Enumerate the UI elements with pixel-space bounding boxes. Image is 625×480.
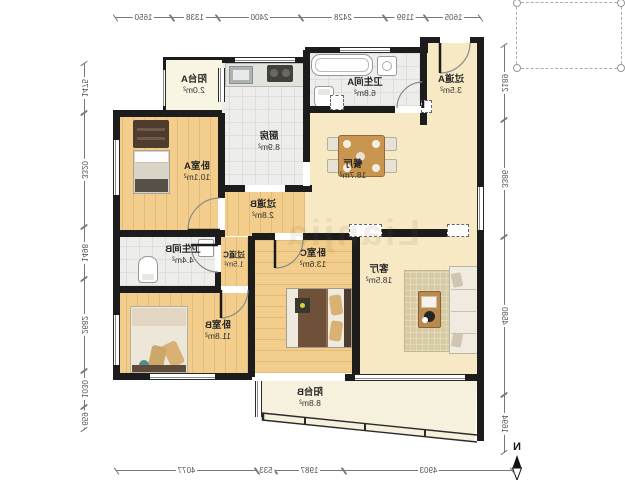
room-label-kitchen: 厨房8.9m²: [258, 132, 280, 152]
door-opening-bedroom-a: [218, 198, 225, 230]
wall: [248, 236, 255, 377]
dim-top: 2428: [301, 17, 385, 18]
dim-side: 2189: [504, 45, 505, 120]
dining-chair: [384, 159, 397, 173]
dim-side: 1475: [84, 63, 85, 113]
window-bedroom-b: [150, 373, 215, 380]
dim-side: 1694: [504, 395, 505, 453]
wall-balcony-a: [163, 57, 222, 60]
window-balcony-a: [163, 70, 166, 106]
kitchen-sink: [229, 66, 253, 84]
living-sofa: [449, 266, 478, 354]
bedroom-c-bed: [286, 288, 352, 348]
room-label-bedroom-a: 卧室A10.1m²: [184, 162, 210, 182]
window-kitchen: [235, 57, 295, 63]
window-dining: [477, 187, 484, 230]
dim-top: 1605: [426, 17, 481, 18]
room-label-balcony-b: 阳台B8.8m²: [297, 388, 323, 408]
window-bathroom-a: [340, 47, 390, 53]
door-opening-bedroom-b: [221, 286, 248, 293]
wall: [113, 230, 225, 237]
corner-circle: [513, 0, 521, 7]
dim-bottom: 1987: [275, 470, 344, 471]
window-balcony-b: [255, 381, 262, 417]
corner-circle: [617, 64, 625, 72]
bedroom-b-bed: [130, 306, 188, 373]
room-label-hallway-a: 过道A3.5m²: [438, 75, 464, 95]
window-bedroom-a: [113, 140, 120, 195]
room-label-bathroom-b: 卫生间B4.4m²: [165, 245, 200, 265]
room-label-dining: 餐厅18.7m²: [340, 160, 366, 180]
room-label-bedroom-c: 卧室C13.6m²: [300, 249, 326, 269]
room-label-bathroom-a: 卫生间A6.8m²: [347, 78, 382, 98]
room-label-hallway-c: 过道C1.5m²: [223, 251, 245, 268]
balcony-armchair: [376, 389, 407, 420]
flue-box: [330, 95, 344, 110]
door-opening-bathroom-a: [395, 106, 422, 113]
corner-circle: [513, 64, 521, 72]
corner-circle: [617, 0, 625, 7]
window-balcony-a-door: [218, 68, 225, 102]
balcony-armchair: [430, 391, 455, 418]
bathroom-a-sink: [377, 56, 397, 76]
kitchen-stove: [267, 65, 293, 82]
bedroom-a-bed: [133, 150, 170, 194]
door-opening-kitchen: [303, 162, 310, 186]
dim-bottom: 4903: [344, 470, 513, 471]
dim-top: 1650: [115, 17, 172, 18]
wall: [352, 236, 360, 381]
dim-top: 1199: [385, 17, 426, 18]
compass-needle-icon: [513, 455, 522, 468]
dim-top: 1338: [172, 17, 218, 18]
wall: [113, 110, 222, 117]
room-label-bedroom-b: 卧室B11.8m²: [205, 321, 231, 341]
bathroom-b-toilet: [138, 256, 158, 283]
window-bedroom-b-side: [113, 315, 120, 365]
flue-box: [421, 100, 432, 113]
dim-bottom: 533: [257, 470, 275, 471]
door-opening-kitchen-hall: [245, 185, 285, 192]
living-coffee-table: [418, 291, 441, 328]
dim-side: 4580: [504, 237, 505, 395]
dim-top: 2400: [218, 17, 301, 18]
floorplan-image: 阳台A2.0m² 厨房8.9m² 卫生间A6.8m² 过道A3.5m² 餐厅18…: [0, 0, 625, 480]
room-label-hallway-b: 过道B2.8m²: [250, 200, 276, 220]
dim-side: 659: [84, 407, 85, 430]
room-label-balcony-a: 阳台A2.0m²: [181, 75, 207, 95]
dim-side: 1498: [84, 227, 85, 279]
dim-side: 3386: [504, 120, 505, 237]
room-label-living: 客厅18.5m²: [366, 265, 392, 285]
dining-chair: [384, 137, 397, 151]
wall-exterior: [477, 37, 484, 441]
column-dashed-box: [447, 224, 469, 237]
bedroom-a-dresser: [133, 120, 169, 148]
dim-bottom: 4077: [116, 470, 257, 471]
bathtub: [311, 54, 373, 76]
floorplan-mirrored-canvas: 阳台A2.0m² 厨房8.9m² 卫生间A6.8m² 过道A3.5m² 餐厅18…: [0, 0, 625, 480]
door-opening-bathroom-b: [215, 245, 221, 272]
balcony-round-table: [407, 390, 431, 414]
compass-north-label: N: [508, 441, 526, 453]
dim-side: 3320: [84, 113, 85, 227]
dim-side: 2682: [84, 279, 85, 371]
dim-side: 1030: [84, 371, 85, 407]
flue-box: [330, 385, 345, 397]
window-balcony-door: [355, 374, 465, 381]
door-opening-entry: [440, 37, 470, 43]
neighbor-unit-dashed-outline: [516, 2, 622, 69]
